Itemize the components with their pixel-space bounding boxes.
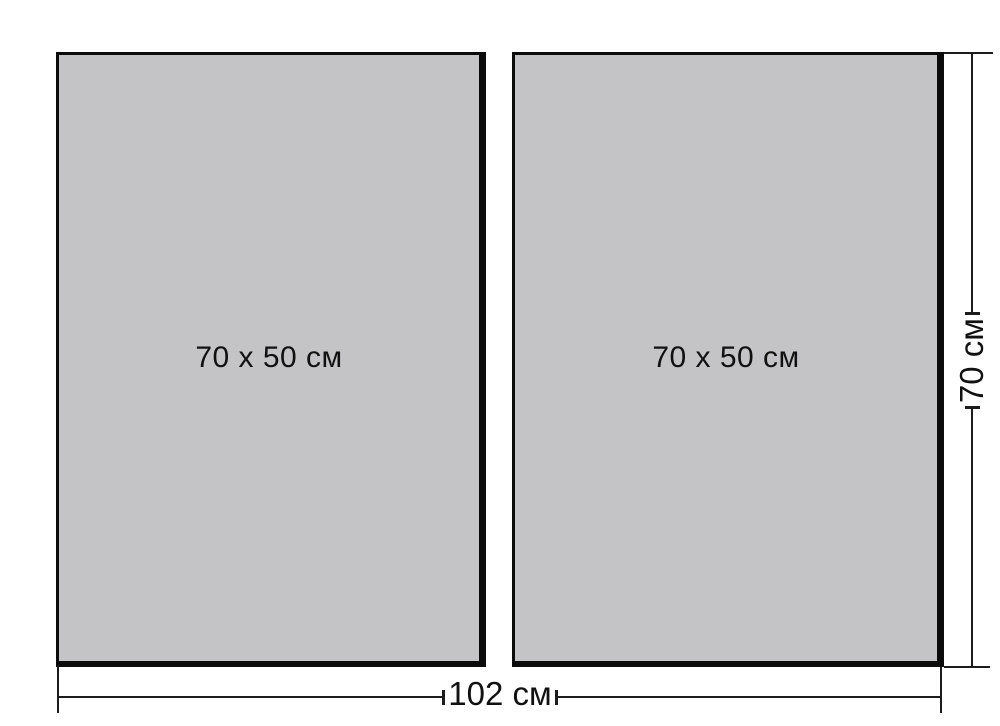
height-dimension: 70 см [952,53,992,668]
dimension-line-segment [971,409,973,668]
total-width-label: 102 см [445,675,554,719]
dimension-diagram: 70 x 50 см 70 x 50 см 102 см 70 см [0,0,1000,726]
dimension-line-segment [971,53,973,312]
dimension-line-segment [558,696,942,698]
width-dimension: 102 см [58,676,942,718]
panel-size-label: 70 x 50 см [652,341,799,375]
canvas-panel-left: 70 x 50 см [56,52,486,667]
dimension-line-segment [58,696,442,698]
total-height-label: 70 см [953,315,991,406]
canvas-panel-right: 70 x 50 см [512,52,944,667]
panel-size-label: 70 x 50 см [195,341,342,375]
